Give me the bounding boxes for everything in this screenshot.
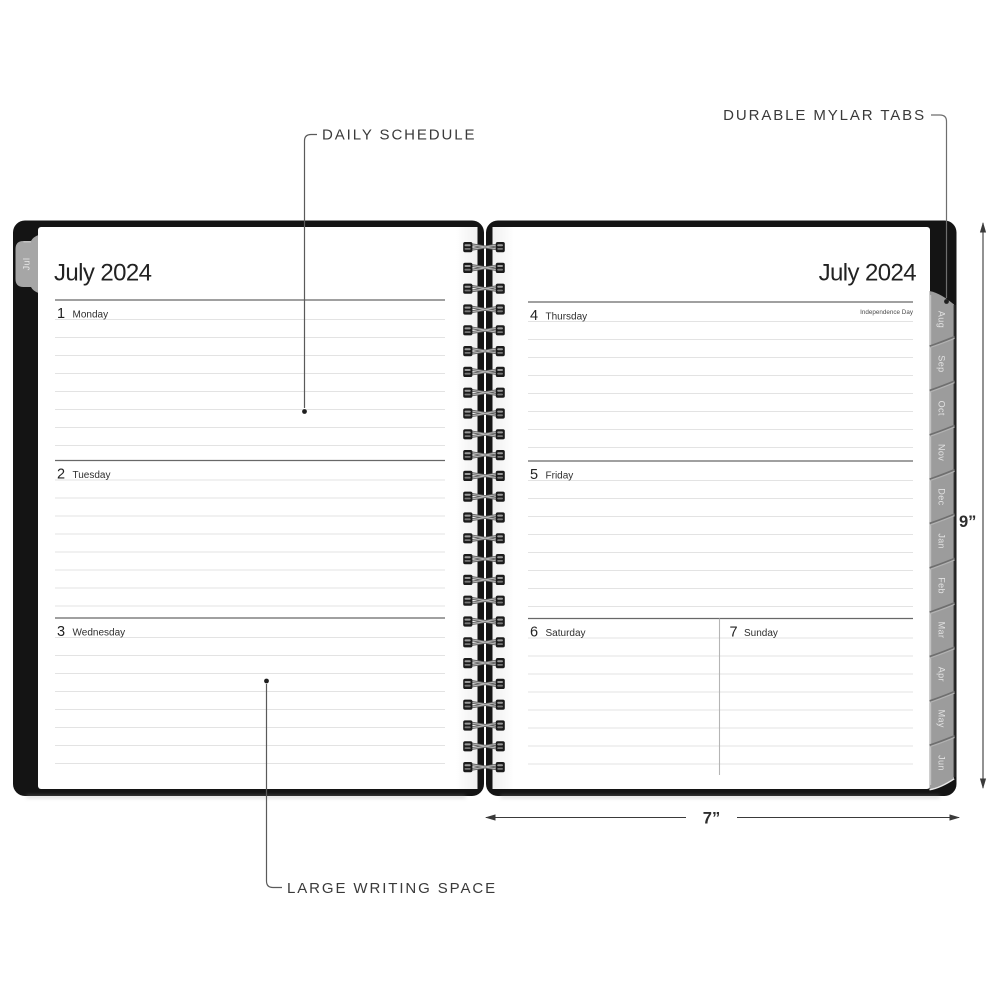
svg-text:Mar: Mar xyxy=(937,622,947,639)
svg-text:Tuesday: Tuesday xyxy=(73,470,111,481)
svg-text:Jan: Jan xyxy=(937,533,947,549)
svg-text:Monday: Monday xyxy=(73,310,109,321)
svg-text:Thursday: Thursday xyxy=(546,312,588,323)
svg-text:Aug: Aug xyxy=(937,311,947,328)
svg-text:July 2024: July 2024 xyxy=(54,260,152,287)
svg-text:Feb: Feb xyxy=(937,577,947,594)
svg-text:2: 2 xyxy=(57,467,65,483)
svg-text:Sep: Sep xyxy=(937,355,947,372)
svg-text:Oct: Oct xyxy=(937,401,947,416)
svg-text:Saturday: Saturday xyxy=(546,628,586,639)
svg-text:3: 3 xyxy=(57,624,65,640)
svg-text:1: 1 xyxy=(57,306,65,322)
svg-text:LARGE WRITING SPACE: LARGE WRITING SPACE xyxy=(287,880,497,897)
svg-text:Jul: Jul xyxy=(22,258,32,271)
svg-text:Jun: Jun xyxy=(937,755,947,771)
svg-text:Apr: Apr xyxy=(937,667,947,682)
svg-text:Dec: Dec xyxy=(937,488,947,505)
svg-text:7: 7 xyxy=(730,625,738,641)
svg-text:Nov: Nov xyxy=(937,444,947,461)
svg-text:May: May xyxy=(937,710,947,728)
svg-text:Wednesday: Wednesday xyxy=(73,628,126,639)
svg-text:6: 6 xyxy=(530,625,538,641)
svg-text:July 2024: July 2024 xyxy=(819,260,917,287)
svg-text:4: 4 xyxy=(530,308,538,324)
svg-text:Friday: Friday xyxy=(546,471,574,482)
svg-text:7”: 7” xyxy=(703,810,720,828)
svg-text:Sunday: Sunday xyxy=(744,628,778,639)
svg-text:DURABLE MYLAR TABS: DURABLE MYLAR TABS xyxy=(723,107,926,124)
svg-text:DAILY SCHEDULE: DAILY SCHEDULE xyxy=(322,127,476,144)
svg-text:5: 5 xyxy=(530,467,538,483)
svg-text:9”: 9” xyxy=(959,513,976,531)
svg-text:Independence Day: Independence Day xyxy=(860,309,914,316)
